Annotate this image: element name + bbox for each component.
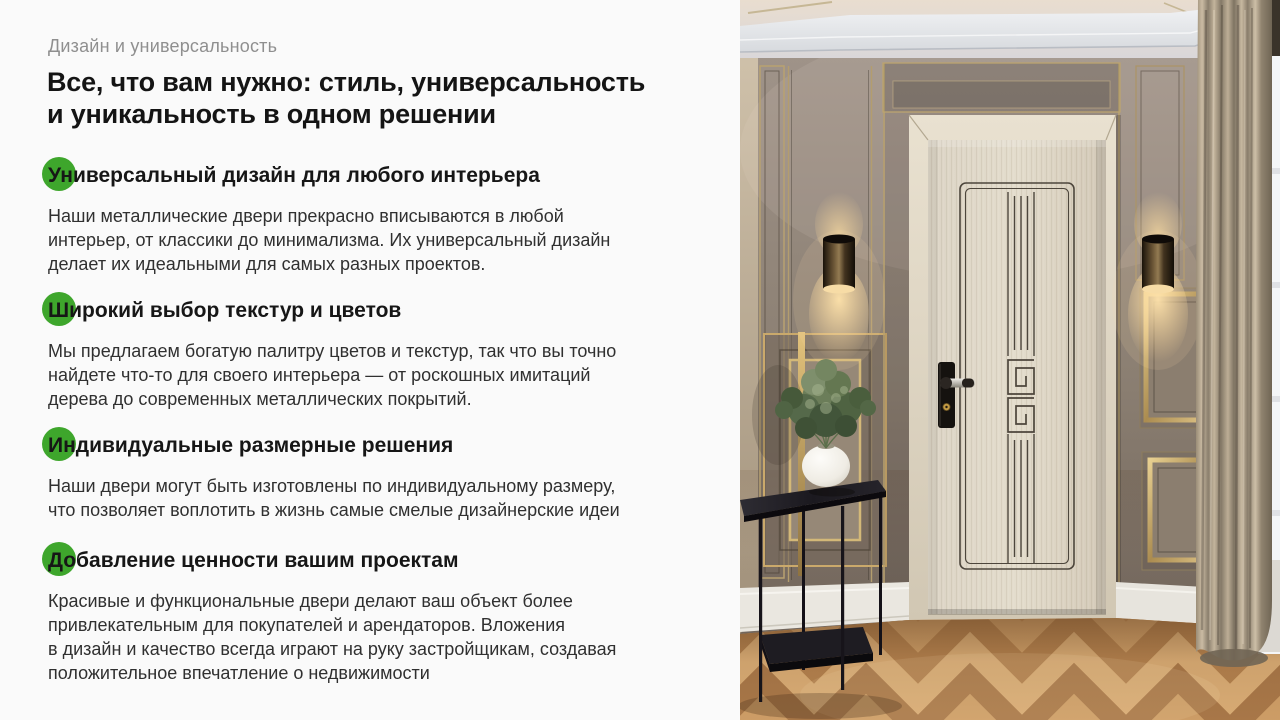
feature-body: Наши металлические двери прекрасно вписы…: [48, 204, 700, 276]
feature-item: Универсальный дизайн для любого интерьер…: [48, 164, 700, 276]
slide-kicker: Дизайн и универсальность: [48, 36, 277, 57]
text-column: Дизайн и универсальность Все, что вам ну…: [48, 0, 708, 720]
feature-title: Индивидуальные размерные решения: [48, 434, 700, 458]
curtain: [1196, 0, 1272, 667]
feature-item: Добавление ценности вашим проектам Краси…: [48, 549, 700, 685]
feature-title: Добавление ценности вашим проектам: [48, 549, 700, 573]
feature-body: Мы предлагаем богатую палитру цветов и т…: [48, 339, 700, 411]
feature-item: Индивидуальные размерные решения Наши дв…: [48, 434, 700, 522]
door-illustration: [883, 63, 1121, 620]
feature-body: Наши двери могут быть изготовлены по инд…: [48, 474, 700, 522]
feature-title: Универсальный дизайн для любого интерьер…: [48, 164, 700, 188]
interior-photo: [740, 0, 1280, 720]
feature-body: Красивые и функциональные двери делают в…: [48, 589, 700, 685]
slide-title: Все, что вам нужно: стиль, универсальнос…: [47, 66, 645, 130]
feature-title: Широкий выбор текстур и цветов: [48, 299, 700, 323]
feature-item: Широкий выбор текстур и цветов Мы предла…: [48, 299, 700, 411]
presentation-slide: Дизайн и универсальность Все, что вам ну…: [0, 0, 1280, 720]
